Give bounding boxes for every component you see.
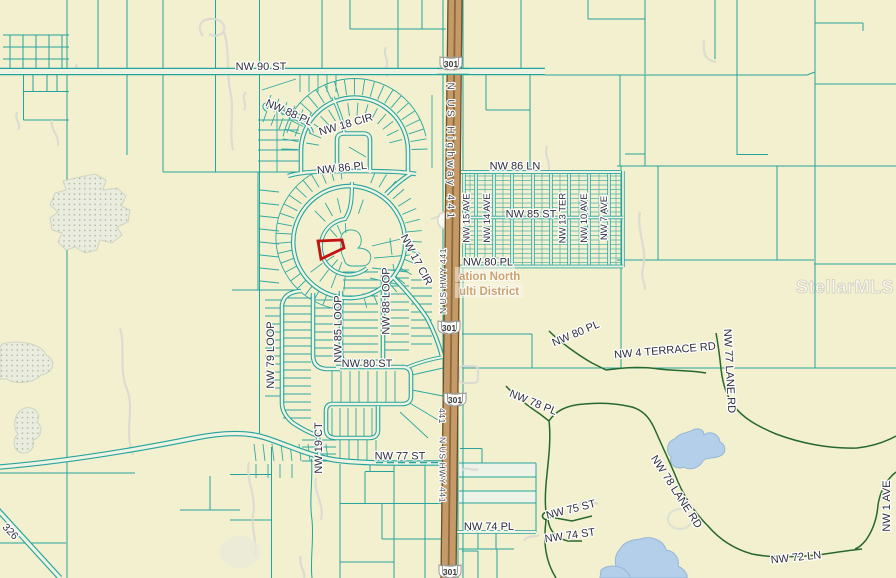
svg-text:301: 301 [442, 323, 456, 333]
svg-text:N US HWY 441: N US HWY 441 [438, 248, 448, 314]
svg-text:NW 14 AVE: NW 14 AVE [482, 193, 493, 242]
svg-text:ulti District: ulti District [459, 286, 519, 298]
svg-text:NW 88 LOOP: NW 88 LOOP [380, 267, 392, 334]
svg-text:StellarMLS: StellarMLS [796, 277, 894, 297]
svg-text:NW 86 LN: NW 86 LN [490, 160, 541, 172]
svg-text:NW 7 AVE: NW 7 AVE [599, 196, 610, 240]
svg-text:441: 441 [437, 408, 447, 424]
svg-text:NW 1 AVE: NW 1 AVE [881, 480, 893, 531]
svg-text:NW 13 TER: NW 13 TER [558, 193, 569, 244]
svg-text:ation North: ation North [459, 271, 520, 283]
svg-text:NW 15 AVE: NW 15 AVE [462, 193, 473, 242]
svg-text:NW 80 PL: NW 80 PL [463, 256, 513, 268]
svg-text:NW 85 ST: NW 85 ST [506, 208, 557, 220]
svg-text:N US Highway 441: N US Highway 441 [444, 83, 455, 222]
svg-text:NW 10 AVE: NW 10 AVE [579, 193, 590, 242]
svg-text:NW 19 CT: NW 19 CT [313, 422, 325, 474]
svg-text:NW 79 LOOP: NW 79 LOOP [265, 321, 277, 388]
svg-text:301: 301 [443, 567, 457, 577]
svg-text:NW 74 PL: NW 74 PL [464, 521, 514, 533]
svg-text:NW 85 LOOP: NW 85 LOOP [332, 295, 344, 362]
svg-text:NW 77 ST: NW 77 ST [375, 450, 426, 462]
svg-text:NW 90 ST: NW 90 ST [236, 61, 287, 73]
svg-text:301: 301 [448, 395, 462, 405]
svg-text:N US HWY 441: N US HWY 441 [437, 437, 447, 503]
svg-text:NW 80 ST: NW 80 ST [342, 358, 393, 370]
svg-text:301: 301 [444, 59, 458, 69]
